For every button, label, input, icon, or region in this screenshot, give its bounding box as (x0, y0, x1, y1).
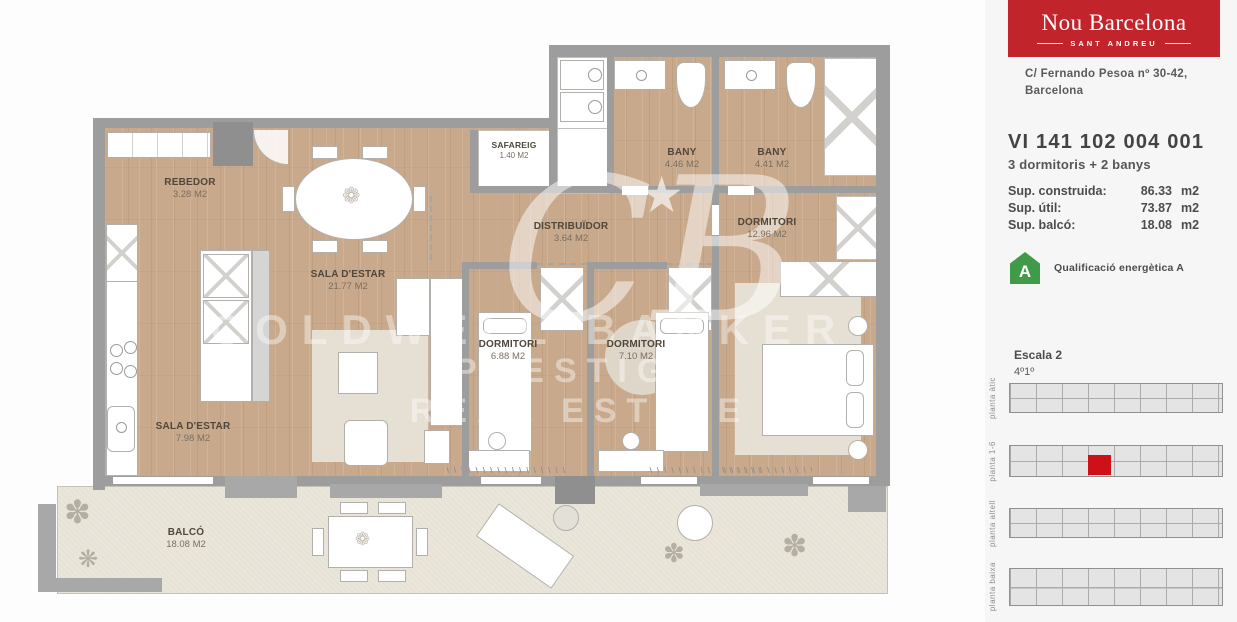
brand-banner: Nou Barcelona SANT ANDREU (1008, 0, 1220, 57)
outdoor-chair (312, 528, 324, 556)
dining-chair (282, 186, 295, 212)
surface-unit: m2 (1181, 218, 1199, 232)
dining-chair (413, 186, 426, 212)
room-name: DISTRIBUÏDOR (512, 220, 630, 233)
wall (876, 45, 890, 486)
surface-label: Sup. construida: (1008, 184, 1130, 198)
wardrobe (780, 261, 878, 297)
building-level-diagram (1009, 568, 1223, 606)
info-sidebar: Nou Barcelona SANT ANDREU C/ Fernando Pe… (985, 0, 1237, 622)
window (112, 476, 214, 485)
room-name: DORMITORI (716, 216, 818, 229)
building-level-baixa: planta baixa (988, 568, 1223, 606)
island-cabinet (203, 300, 249, 344)
wall (712, 57, 719, 193)
building-level-diagram (1009, 445, 1223, 477)
room-name: BANY (636, 146, 728, 159)
room-area: 7.10 M2 (588, 351, 684, 363)
building-level-diagram (1009, 508, 1223, 538)
room-area: 4.41 M2 (726, 159, 818, 171)
room-area: 1.40 M2 (476, 151, 552, 161)
plant-icon: ❋ (78, 548, 98, 572)
energy-rating-label: Qualificació energètica A (1054, 262, 1184, 274)
room-label-rebedor: REBEDOR 3.28 M2 (138, 176, 242, 201)
staircase-info: Escala 2 4º1º (1014, 346, 1062, 381)
balcony-wall (38, 578, 162, 592)
pillow (846, 350, 864, 386)
unit-layout: 3 dormitoris + 2 banys (1008, 157, 1151, 172)
wall (607, 57, 614, 193)
room-label-dormitori-principal: DORMITORI 12.96 M2 (716, 216, 818, 241)
plant-icon: ✽ (64, 496, 91, 528)
brand-subtitle: SANT ANDREU (1037, 39, 1190, 48)
sofa (430, 278, 464, 426)
facade-sill (330, 484, 442, 498)
surface-value: 18.08 (1130, 218, 1172, 232)
building-level-label: planta àtic (988, 377, 1000, 419)
room-label-sala-destar-kitchen: SALA D'ESTAR 7.98 M2 (138, 420, 248, 445)
room-label-bany-1: BANY 4.46 M2 (636, 146, 728, 171)
closet-master (836, 196, 880, 260)
plant-icon: ✽ (782, 532, 807, 562)
energy-rating: A Qualificació energètica A (1010, 252, 1184, 284)
hob-burner (110, 362, 123, 375)
building-level-diagram (1009, 383, 1223, 413)
room-label-distribuidor: DISTRIBUÏDOR 3.64 M2 (512, 220, 630, 245)
energy-rating-letter: A (1019, 262, 1031, 282)
door-opening (622, 186, 648, 195)
room-name: DORMITORI (588, 338, 684, 351)
room-label-balco: BALCÓ 18.08 M2 (140, 526, 232, 551)
closet-right-column (824, 58, 880, 176)
wall (470, 186, 888, 193)
room-name: SAFAREIG (476, 140, 552, 151)
pillow (483, 318, 527, 334)
room-area: 21.77 M2 (292, 281, 404, 293)
address: C/ Fernando Pesoa nº 30-42, Barcelona (1025, 66, 1188, 99)
window (812, 476, 870, 485)
wall (462, 262, 537, 269)
room-area: 7.98 M2 (138, 433, 248, 445)
room-label-sala-destar: SALA D'ESTAR 21.77 M2 (292, 268, 404, 293)
outdoor-chair (416, 528, 428, 556)
building-level-1-6: planta 1-6 (988, 445, 1223, 477)
wall (549, 45, 888, 57)
hob-burner (124, 341, 137, 354)
hob-burner (110, 344, 123, 357)
plant-icon: ✽ (663, 540, 685, 566)
nightstand (848, 316, 868, 336)
surface-label: Sup. balcó: (1008, 218, 1130, 232)
surface-label: Sup. útil: (1008, 201, 1130, 215)
outdoor-chair (378, 502, 406, 514)
surface-unit: m2 (1181, 201, 1199, 215)
bath-entry-floor (557, 128, 609, 194)
building-level-atic: planta àtic (988, 383, 1223, 413)
facade-sill (700, 484, 808, 496)
room-area: 18.08 M2 (140, 539, 232, 551)
side-table (553, 505, 579, 531)
facade-pillar (555, 476, 595, 504)
pillow (846, 392, 864, 428)
opening-dashed-line (537, 263, 587, 265)
brand-title: Nou Barcelona (1041, 10, 1186, 36)
room-label-safareig: SAFAREIG 1.40 M2 (476, 140, 552, 161)
island-cabinet (203, 254, 249, 298)
room-name: SALA D'ESTAR (292, 268, 404, 281)
door-opening (728, 186, 754, 195)
room-label-dormitori-3: DORMITORI 7.10 M2 (588, 338, 684, 363)
floorplan-sheet: ❁ (0, 0, 1237, 622)
highlighted-unit (1088, 455, 1111, 475)
opening-dashed-line (430, 196, 432, 260)
dining-chair (312, 240, 338, 253)
sink-drain (116, 422, 127, 433)
flower-icon: ❁ (355, 530, 370, 548)
wall (93, 118, 557, 128)
room-area: 3.28 M2 (138, 189, 242, 201)
room-name: SALA D'ESTAR (138, 420, 248, 433)
nightstand (848, 440, 868, 460)
unit-code: VI 141 102 004 001 (1008, 131, 1204, 154)
room-name: DORMITORI (460, 338, 556, 351)
outdoor-chair (340, 570, 368, 582)
radiator (722, 467, 812, 473)
building-level-label: planta 1-6 (988, 441, 1000, 482)
island-bar (252, 250, 270, 402)
facade-pillar (848, 486, 886, 512)
dining-chair (362, 146, 388, 159)
opening-dashed-line (667, 263, 712, 265)
washer-door (588, 68, 602, 82)
dryer-door (588, 100, 602, 114)
surface-row: Sup. construida:86.33m2 (1008, 184, 1213, 198)
staircase-label: Escala 2 (1014, 346, 1062, 364)
room-area: 6.88 M2 (460, 351, 556, 363)
wall (587, 262, 667, 269)
room-area: 4.46 M2 (636, 159, 728, 171)
flower-icon: ❁ (342, 185, 360, 207)
hob-burner (124, 365, 137, 378)
window (480, 476, 542, 485)
room-area: 12.96 M2 (716, 229, 818, 241)
address-line-2: Barcelona (1025, 83, 1188, 100)
kitchen-cabinet (106, 224, 138, 282)
surface-unit: m2 (1181, 184, 1199, 198)
sink-drain (746, 70, 757, 81)
surface-row: Sup. útil:73.87m2 (1008, 201, 1213, 215)
outdoor-table (328, 516, 413, 568)
wall (549, 45, 557, 193)
room-area: 3.64 M2 (512, 233, 630, 245)
address-line-1: C/ Fernando Pesoa nº 30-42, (1025, 66, 1188, 83)
surface-value: 73.87 (1130, 201, 1172, 215)
building-level-label: planta baixa (988, 562, 1000, 611)
surface-value: 86.33 (1130, 184, 1172, 198)
building-level-altell: planta altell (988, 508, 1223, 538)
desk-chair (622, 432, 640, 450)
room-name: BANY (726, 146, 818, 159)
surface-row: Sup. balcó:18.08m2 (1008, 218, 1213, 232)
wall (93, 118, 105, 490)
floor-door-label: 4º1º (1014, 364, 1062, 381)
desk-chair (488, 432, 506, 450)
entry-door-block (213, 122, 253, 166)
coffee-table (338, 352, 378, 394)
energy-rating-icon: A (1010, 252, 1040, 284)
wardrobe (540, 267, 584, 331)
room-name: BALCÓ (140, 526, 232, 539)
armchair (344, 420, 388, 466)
room-label-dormitori-2: DORMITORI 6.88 M2 (460, 338, 556, 363)
dining-chair (362, 240, 388, 253)
outdoor-chair (340, 502, 368, 514)
building-level-label: planta altell (988, 500, 1000, 547)
lounge-chair (677, 505, 713, 541)
entry-closet (107, 132, 211, 158)
window (640, 476, 698, 485)
sink-drain (636, 70, 647, 81)
dining-chair (312, 146, 338, 159)
pillow (660, 318, 704, 334)
wall (462, 262, 469, 478)
facade-pillar (225, 476, 297, 498)
room-name: REBEDOR (138, 176, 242, 189)
wall (587, 262, 594, 478)
outdoor-chair (378, 570, 406, 582)
room-label-bany-2: BANY 4.41 M2 (726, 146, 818, 171)
side-table (424, 430, 450, 464)
